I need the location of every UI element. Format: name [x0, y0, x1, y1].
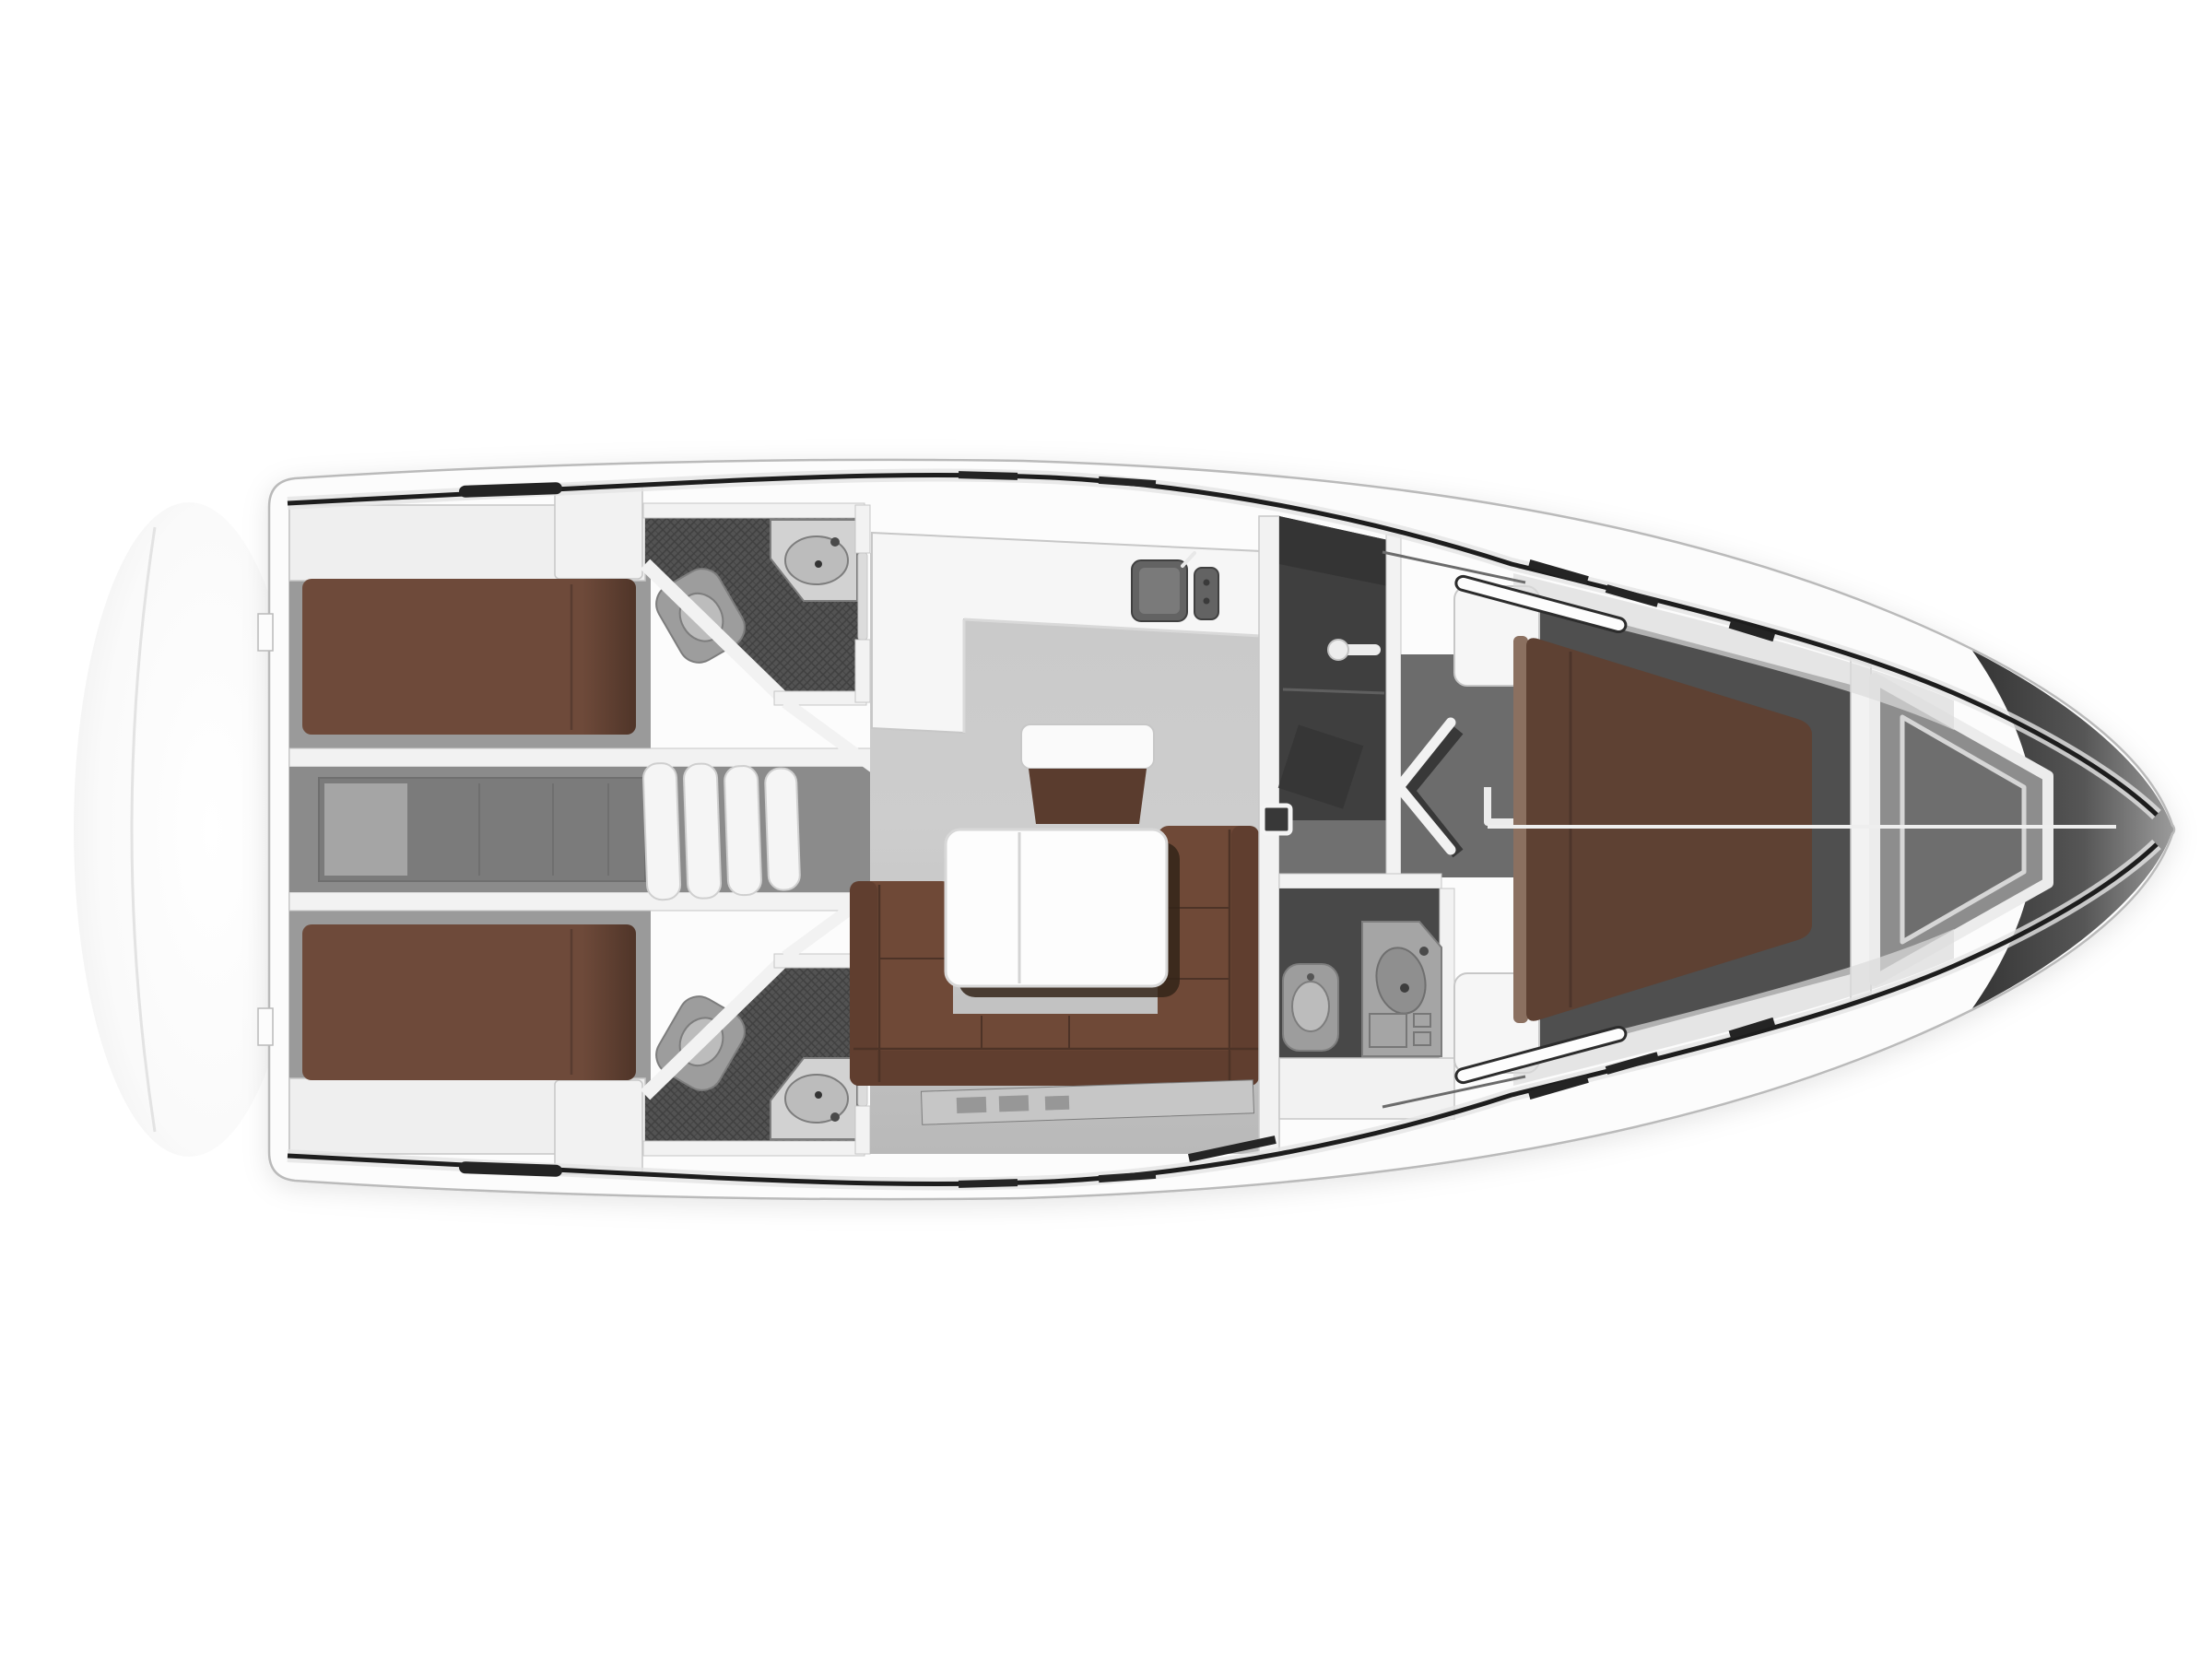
nav-seat-cushion [1029, 769, 1147, 824]
sofa-backrest-bottom [850, 1051, 1257, 1086]
galley-sink-inner [1139, 568, 1180, 614]
shower-entry-floor [1279, 820, 1388, 876]
deck-hatch-dash [959, 471, 1018, 480]
wc-toilet-bowl [1292, 982, 1329, 1031]
saloon [850, 533, 1309, 1154]
kick-box [999, 1095, 1030, 1112]
nav-seat-top [1021, 724, 1154, 769]
corridor-wall-starboard [289, 892, 871, 911]
floor-plan-page: Sailing yacht interior layout plan, top … [0, 0, 2212, 1659]
step [642, 763, 680, 900]
head-wall-top [643, 503, 865, 518]
wc-flush-icon [1307, 973, 1314, 981]
wc-cabinet [1279, 1058, 1454, 1119]
drain-icon [815, 560, 822, 568]
sofa-backrest-right [1231, 826, 1259, 1086]
stove-knob [1204, 580, 1210, 586]
berth-shade [516, 579, 636, 735]
shower-mixer-icon [1328, 640, 1348, 660]
wc-drain-icon [1400, 983, 1409, 993]
kick-box [957, 1097, 987, 1113]
transom-step-port [258, 614, 273, 651]
door-latch [1263, 806, 1290, 833]
floor-plan-canvas [0, 0, 2212, 1659]
step [684, 763, 722, 899]
faucet-icon [830, 537, 840, 547]
saloon-table [946, 829, 1167, 986]
head-divider-wall [1386, 535, 1401, 877]
head-wall-entry-lower [855, 640, 870, 702]
wc-faucet-icon [1419, 947, 1429, 956]
sliding-door [858, 553, 867, 640]
head-wall-mid [1279, 874, 1441, 888]
stove-knob [1204, 598, 1210, 605]
step [765, 768, 801, 890]
aft-cabin-starboard [289, 909, 651, 1174]
bow-bulkhead [1851, 658, 1871, 1001]
step [724, 766, 762, 896]
kick-box [1045, 1096, 1070, 1111]
transom-step-starboard [258, 1008, 273, 1045]
aft-cabin-port [289, 485, 651, 750]
head-wall-entry-upper [855, 505, 870, 553]
vberth-trim [1513, 636, 1528, 1023]
wardrobe [555, 485, 642, 579]
corridor-wall-port [289, 748, 871, 767]
engine-panel [324, 783, 407, 876]
engine-corridor [289, 748, 871, 911]
galley-stove [1194, 568, 1218, 619]
